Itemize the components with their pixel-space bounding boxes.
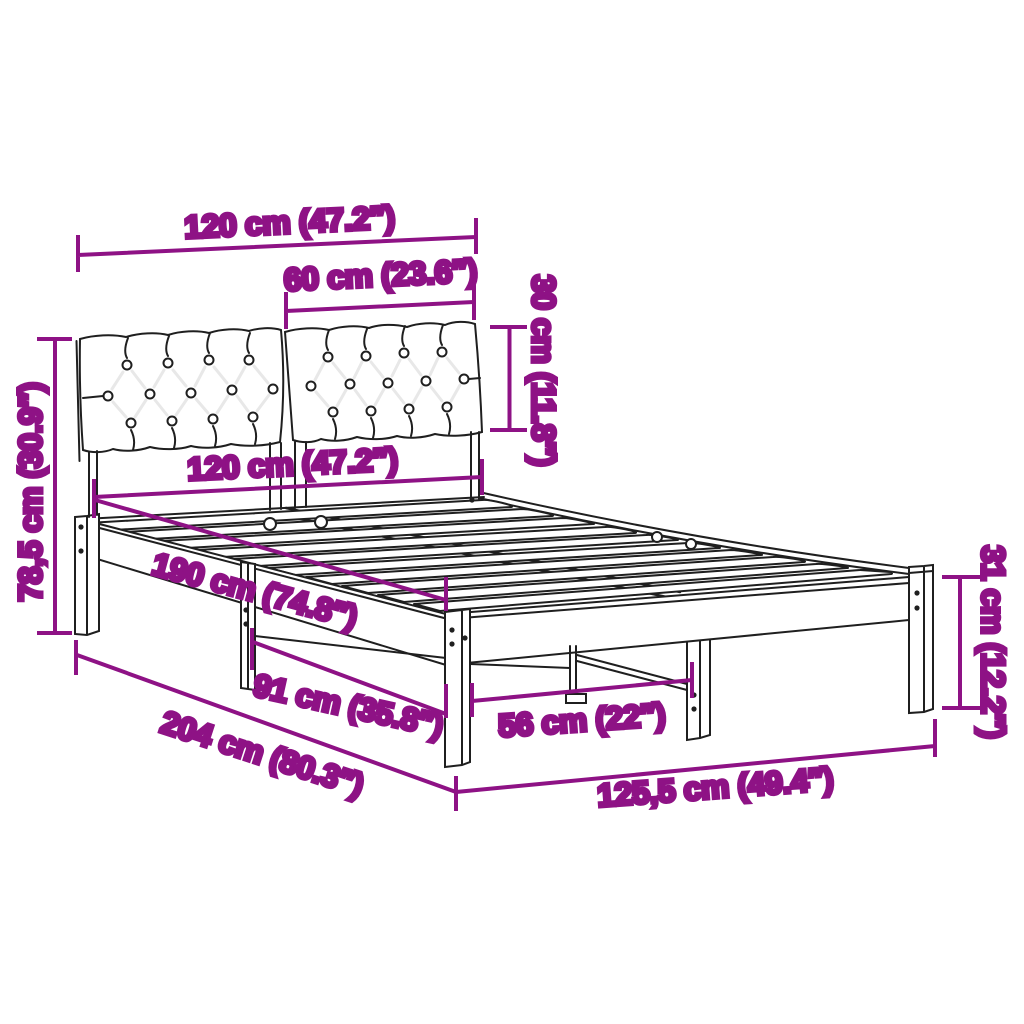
svg-text:30 cm (11.8″): 30 cm (11.8″) xyxy=(526,275,562,467)
svg-text:31 cm (12.2″): 31 cm (12.2″) xyxy=(975,545,1011,738)
svg-text:78,5 cm (30.9″): 78,5 cm (30.9″) xyxy=(12,382,48,601)
